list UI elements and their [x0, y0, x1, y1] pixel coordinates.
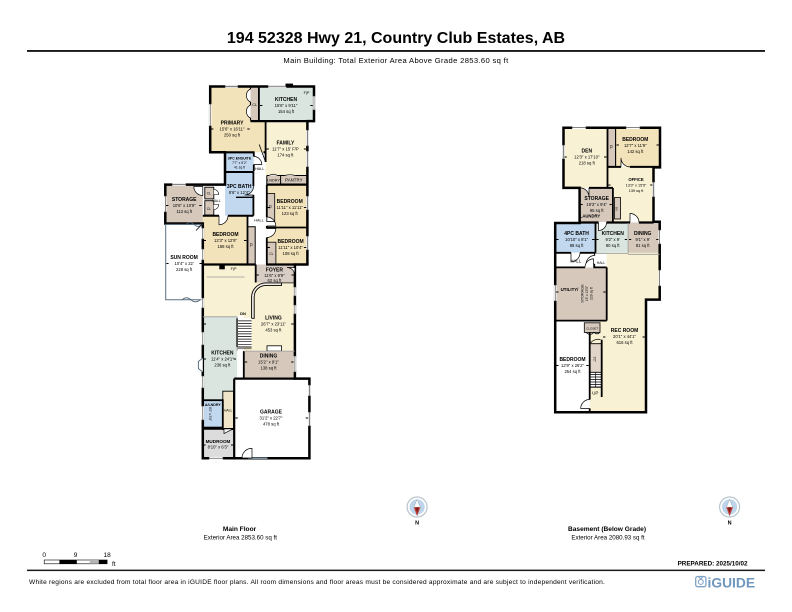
svg-text:F|P: F|P — [304, 91, 310, 95]
svg-text:0: 0 — [42, 552, 46, 559]
svg-text:453 sq ft: 453 sq ft — [265, 328, 282, 333]
svg-text:478 sq ft: 478 sq ft — [263, 422, 280, 427]
svg-text:ft: ft — [112, 561, 116, 568]
svg-text:218 sq ft: 218 sq ft — [579, 161, 596, 166]
svg-text:108 sq ft: 108 sq ft — [283, 251, 300, 256]
svg-text:142 sq ft: 142 sq ft — [627, 149, 644, 154]
svg-text:8'6" x 12'4": 8'6" x 12'4" — [229, 190, 250, 195]
svg-text:STORAGE: STORAGE — [581, 284, 585, 303]
svg-text:188 sq ft: 188 sq ft — [217, 244, 234, 249]
svg-text:CLOSET: CLOSET — [586, 327, 598, 331]
svg-text:10'10" x 8'1": 10'10" x 8'1" — [565, 237, 588, 242]
svg-text:12'7" x 11'9": 12'7" x 11'9" — [624, 143, 647, 148]
svg-text:88 sq ft: 88 sq ft — [570, 243, 585, 248]
svg-text:UTILITY/: UTILITY/ — [561, 287, 580, 292]
svg-text:9'1" x 9': 9'1" x 9' — [635, 237, 650, 242]
svg-text:154 sq ft: 154 sq ft — [278, 109, 295, 114]
svg-text:254 sq ft: 254 sq ft — [564, 369, 581, 374]
svg-text:HALL: HALL — [212, 199, 221, 203]
svg-text:15'6" x 16'11": 15'6" x 16'11" — [220, 127, 245, 132]
svg-text:123 sq ft: 123 sq ft — [282, 211, 299, 216]
svg-text:80 sq ft: 80 sq ft — [606, 243, 621, 248]
svg-text:HALL: HALL — [255, 167, 265, 171]
svg-text:MUDROOM: MUDROOM — [206, 439, 231, 444]
svg-text:236 sq ft: 236 sq ft — [214, 363, 231, 368]
svg-text:95 sq ft: 95 sq ft — [590, 208, 605, 213]
svg-text:LAUNDRY: LAUNDRY — [580, 214, 601, 219]
svg-text:Main Building: Total Exterior: Main Building: Total Exterior Area Above… — [283, 56, 509, 65]
svg-text:White regions are excluded fro: White regions are excluded from total fl… — [29, 579, 605, 586]
svg-text:Exterior Area 2853.60 sq ft: Exterior Area 2853.60 sq ft — [204, 534, 278, 541]
svg-text:12'3" x 17'10": 12'3" x 17'10" — [574, 155, 600, 160]
svg-text:62 sq ft: 62 sq ft — [268, 278, 283, 283]
svg-text:20'1" x 44'1": 20'1" x 44'1" — [613, 334, 636, 339]
svg-text:250 sq ft: 250 sq ft — [224, 133, 241, 138]
svg-text:11'11" x 10'4": 11'11" x 10'4" — [278, 245, 303, 250]
svg-text:15' x 15'5": 15' x 15'5" — [585, 285, 589, 301]
svg-text:HALL: HALL — [571, 259, 582, 264]
svg-text:9'2" x 9': 9'2" x 9' — [605, 237, 620, 242]
svg-text:15'2" x 9'1": 15'2" x 9'1" — [258, 360, 279, 365]
svg-text:139 sq ft: 139 sq ft — [629, 189, 645, 193]
svg-text:81 sq ft: 81 sq ft — [636, 243, 651, 248]
svg-text:12'3" x 12'9": 12'3" x 12'9" — [214, 238, 237, 243]
svg-text:UP: UP — [592, 391, 598, 396]
svg-text:PREPARED: 2025/10/02: PREPARED: 2025/10/02 — [678, 561, 748, 568]
svg-text:8'10" x 6'3": 8'10" x 6'3" — [208, 445, 229, 450]
svg-text:11'7" x 15' F/P: 11'7" x 15' F/P — [272, 147, 299, 152]
svg-text:228 sq ft: 228 sq ft — [176, 267, 193, 272]
svg-text:194 52328 Hwy 21, Country Club: 194 52328 Hwy 21, Country Club Estates, … — [227, 30, 565, 47]
svg-text:616 sq ft: 616 sq ft — [616, 340, 633, 345]
svg-text:N: N — [415, 521, 419, 527]
svg-text:138 sq ft: 138 sq ft — [260, 366, 277, 371]
svg-text:9: 9 — [74, 552, 78, 559]
svg-text:iGUIDE: iGUIDE — [708, 576, 756, 591]
svg-text:A/LNDRY: A/LNDRY — [205, 403, 221, 407]
svg-text:OFFICE: OFFICE — [628, 177, 644, 182]
svg-text:PANTRY: PANTRY — [285, 178, 302, 183]
svg-text:18: 18 — [103, 552, 111, 559]
svg-text:CL: CL — [249, 243, 253, 247]
svg-text:11'11" x 11'11": 11'11" x 11'11" — [277, 205, 304, 210]
svg-text:Main Floor: Main Floor — [223, 526, 257, 533]
svg-text:CL: CL — [207, 192, 211, 196]
svg-text:12'9" x 26'2": 12'9" x 26'2" — [561, 363, 584, 368]
svg-text:31'2" x 22'7": 31'2" x 22'7" — [260, 416, 283, 421]
svg-text:F|P: F|P — [231, 267, 237, 271]
svg-text:CL: CL — [207, 207, 211, 211]
svg-text:113 sq ft: 113 sq ft — [176, 209, 193, 214]
svg-text:B/I: B/I — [615, 207, 619, 211]
svg-text:19'3" x 9'4": 19'3" x 9'4" — [586, 202, 607, 207]
svg-text:41 sq ft: 41 sq ft — [234, 166, 245, 170]
svg-text:10'4" x 22': 10'4" x 22' — [175, 261, 194, 266]
svg-text:Exterior Area 2080.93 sq ft: Exterior Area 2080.93 sq ft — [571, 535, 645, 542]
svg-text:26'7" x 23'11": 26'7" x 23'11" — [261, 322, 286, 327]
svg-text:HALL: HALL — [254, 219, 264, 223]
svg-text:CL: CL — [268, 205, 272, 209]
svg-text:11'4" x 24'1": 11'4" x 24'1" — [211, 357, 234, 362]
svg-text:CL: CL — [609, 145, 613, 149]
svg-text:174 sq ft: 174 sq ft — [277, 153, 294, 158]
svg-text:7'7" x 5'2": 7'7" x 5'2" — [232, 161, 248, 165]
svg-text:CL: CL — [252, 103, 257, 107]
svg-text:LNDRY: LNDRY — [267, 179, 280, 183]
svg-text:3PC ENSUITE: 3PC ENSUITE — [228, 157, 252, 161]
svg-text:DN: DN — [240, 311, 246, 316]
svg-text:10'6" x 10'9": 10'6" x 10'9" — [173, 203, 196, 208]
svg-text:Basement (Below Grade): Basement (Below Grade) — [568, 526, 646, 533]
svg-text:HALL: HALL — [224, 409, 233, 413]
svg-text:15'6" x 9'11": 15'6" x 9'11" — [275, 103, 298, 108]
svg-text:229 sq ft: 229 sq ft — [590, 287, 594, 300]
svg-text:9'2": 9'2" — [593, 357, 597, 362]
svg-text:8'2" x 5'6": 8'2" x 5'6" — [208, 407, 212, 421]
svg-text:N: N — [728, 521, 732, 527]
svg-text:13'3" x 15'5": 13'3" x 15'5" — [626, 184, 647, 188]
svg-text:CL: CL — [269, 252, 273, 256]
svg-text:HALL: HALL — [597, 261, 606, 265]
